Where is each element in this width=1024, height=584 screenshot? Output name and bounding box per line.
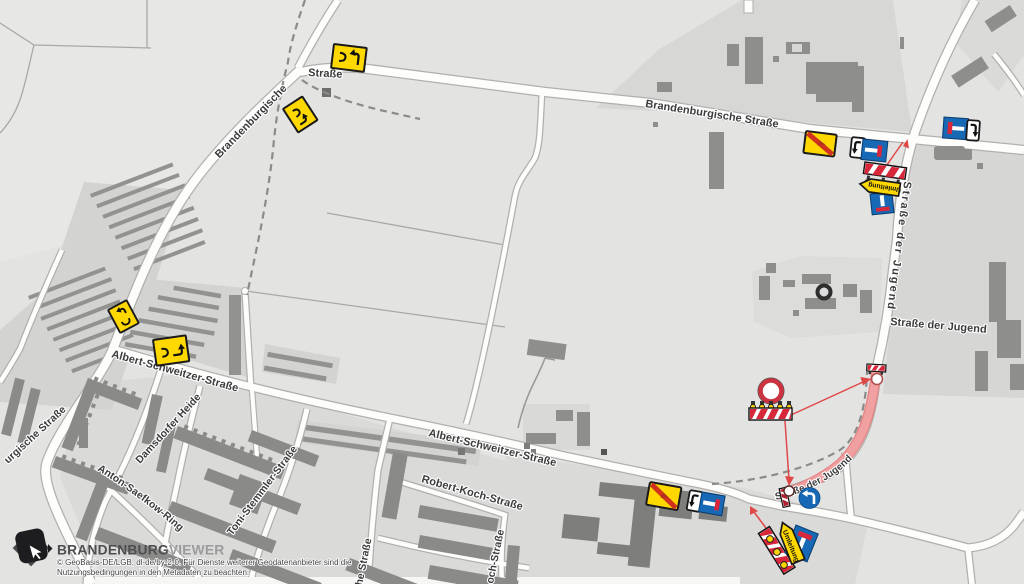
svg-text:Nutzungsbedingungen in den Met: Nutzungsbedingungen in den Metadaten zu …: [57, 568, 249, 577]
svg-text:BRANDENBURGVIEWER: BRANDENBURGVIEWER: [57, 543, 224, 558]
svg-text:© GeoBasis-DE/LGB, dl-de/by-2-: © GeoBasis-DE/LGB, dl-de/by-2-0. Für Die…: [57, 558, 352, 567]
